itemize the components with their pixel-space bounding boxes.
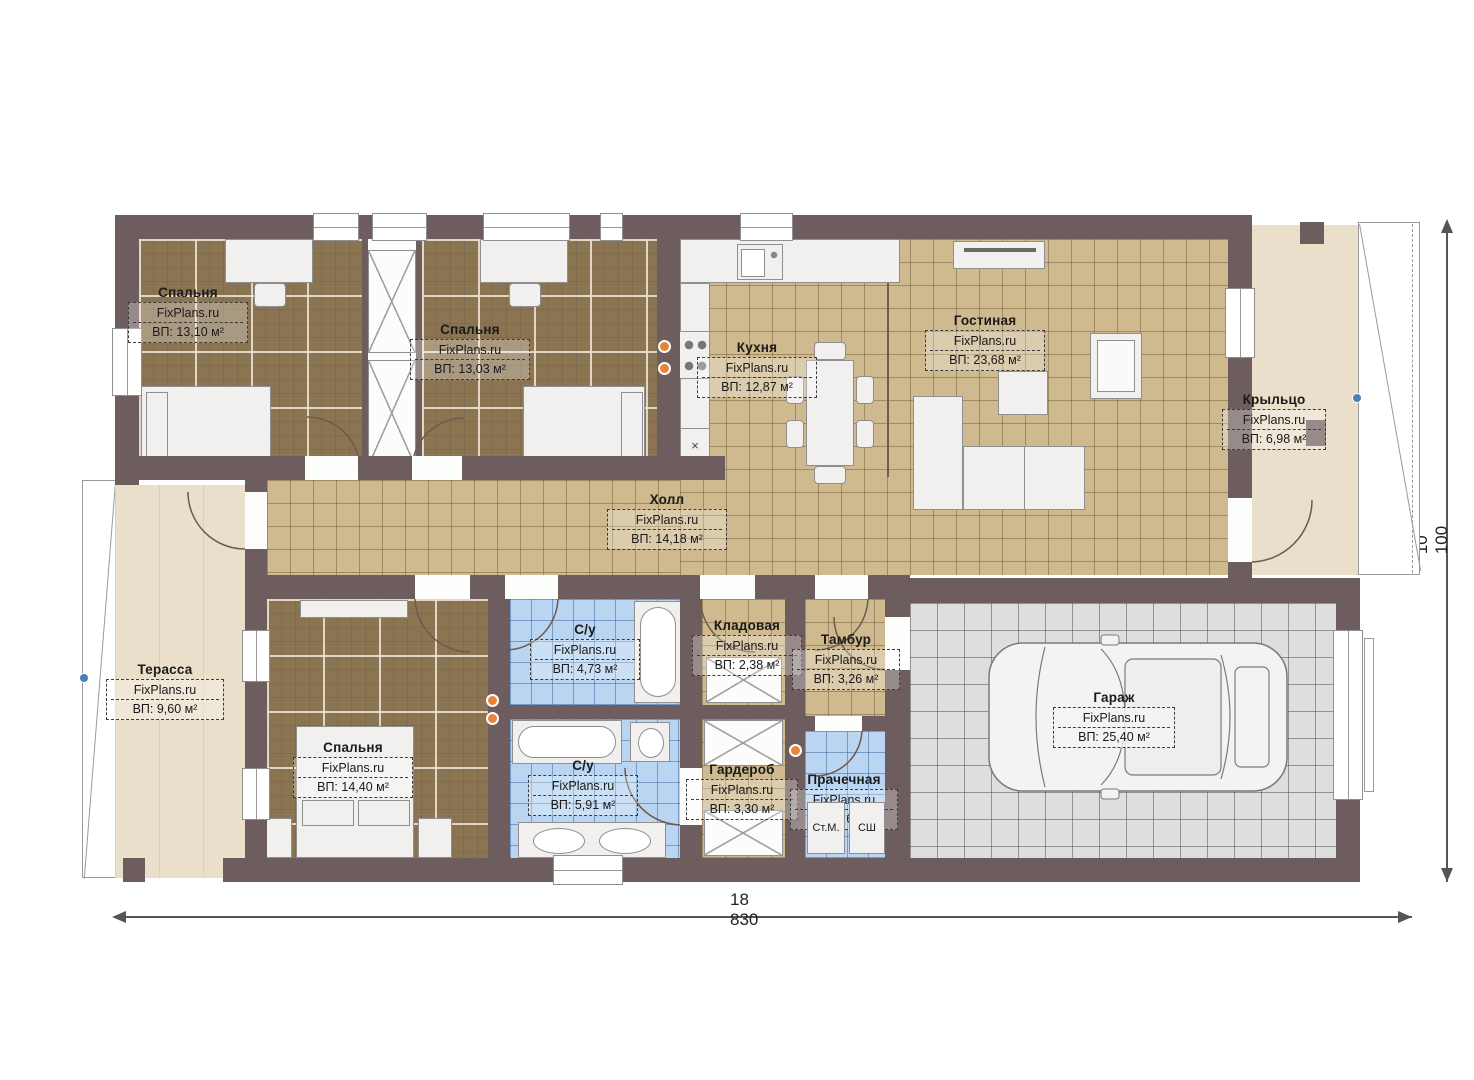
brand-watermark: FixPlans.ru <box>691 781 793 800</box>
reference-dot <box>80 674 88 682</box>
roof-dashed-line <box>1412 224 1413 573</box>
room-area: ВП: 5,91 м² <box>533 796 633 814</box>
window <box>483 213 570 241</box>
washing-machine: Ст.М. <box>807 802 845 854</box>
wall <box>1228 562 1252 578</box>
wall <box>558 575 700 599</box>
window <box>1225 288 1255 358</box>
wall <box>755 575 815 599</box>
door-bedroom-2 <box>412 456 462 480</box>
washing-machine-label: Ст.М. <box>812 822 839 834</box>
room-area: ВП: 14,18 м² <box>612 530 722 548</box>
room-label-kitchen: Кухня FixPlans.ru ВП: 12,87 м² <box>697 340 817 398</box>
pillow <box>358 800 410 826</box>
dining-chair <box>814 342 846 360</box>
wall <box>115 456 305 480</box>
chair <box>509 283 541 307</box>
socket-dot <box>488 714 497 723</box>
tv-stand <box>953 241 1045 269</box>
desk <box>225 239 313 283</box>
dimension-width-label: 18 830 <box>730 890 758 930</box>
terrace-pillar <box>123 858 145 882</box>
dining-chair <box>856 420 874 448</box>
dimension-arrow <box>1398 911 1412 923</box>
room-label-garage: Гараж FixPlans.ru ВП: 25,40 м² <box>1053 690 1175 748</box>
room-label-hall: Холл FixPlans.ru ВП: 14,18 м² <box>607 492 727 550</box>
door-bedroom-1 <box>305 456 358 480</box>
dimension-arrow <box>1441 219 1453 233</box>
sofa-chaise <box>913 396 963 510</box>
room-name: Холл <box>607 492 727 507</box>
room-label-living-room: Гостиная FixPlans.ru ВП: 23,68 м² <box>925 313 1045 371</box>
brand-watermark: FixPlans.ru <box>533 777 633 796</box>
room-name: Гардероб <box>686 762 798 777</box>
nightstand <box>418 818 452 858</box>
brand-watermark: FixPlans.ru <box>1058 709 1170 728</box>
dimension-arrow <box>112 911 126 923</box>
door-laundry <box>815 716 862 731</box>
wall <box>245 575 415 599</box>
door-terrace <box>245 492 267 549</box>
window <box>242 768 270 820</box>
room-name: Спальня <box>410 322 530 337</box>
dimension-line <box>118 916 1412 918</box>
door-pantry <box>700 575 755 599</box>
pillow <box>146 392 168 458</box>
window <box>553 855 623 885</box>
dining-chair <box>814 466 846 484</box>
socket-dot <box>660 364 669 373</box>
room-label-bedroom-1: Спальня FixPlans.ru ВП: 13,10 м² <box>128 285 248 343</box>
dimension-arrow <box>1441 868 1453 882</box>
door-porch <box>1228 500 1252 562</box>
wardrobe-cabinet <box>704 720 783 766</box>
room-area: ВП: 3,26 м² <box>797 670 895 688</box>
brand-watermark: FixPlans.ru <box>111 681 219 700</box>
room-label-bedroom-2: Спальня FixPlans.ru ВП: 13,03 м² <box>410 322 530 380</box>
room-name: С/у <box>530 622 640 637</box>
room-area: ВП: 13,03 м² <box>415 360 525 378</box>
socket-dot <box>791 746 800 755</box>
brand-watermark: FixPlans.ru <box>535 641 635 660</box>
window <box>600 213 623 241</box>
brand-watermark: FixPlans.ru <box>797 651 895 670</box>
room-area: ВП: 12,87 м² <box>702 378 812 396</box>
dining-chair <box>786 420 804 448</box>
room-name: Терасса <box>106 662 224 677</box>
dining-chair <box>856 376 874 404</box>
dishwasher-symbol: × <box>691 438 699 453</box>
brand-watermark: FixPlans.ru <box>298 759 408 778</box>
kitchen-sink <box>737 244 783 280</box>
floor-plan-canvas: × <box>0 0 1474 1080</box>
room-name: Гостиная <box>925 313 1045 328</box>
room-area: ВП: 25,40 м² <box>1058 728 1170 746</box>
sofa <box>963 446 1085 510</box>
reference-dot <box>1353 394 1361 402</box>
socket-dot <box>488 696 497 705</box>
room-area: ВП: 13,10 м² <box>133 323 243 341</box>
armchair <box>1090 333 1142 399</box>
wall <box>470 575 505 599</box>
room-area: ВП: 3,30 м² <box>691 800 793 818</box>
room-area: ВП: 2,38 м² <box>697 656 797 674</box>
wall <box>885 578 1360 603</box>
room-area: ВП: 6,98 м² <box>1227 430 1321 448</box>
wall <box>1228 215 1252 288</box>
window <box>372 213 427 241</box>
room-label-vestibule: Тамбур FixPlans.ru ВП: 3,26 м² <box>792 632 900 690</box>
brand-watermark: FixPlans.ru <box>930 332 1040 351</box>
wall <box>115 215 1252 239</box>
bathtub <box>634 601 682 703</box>
wall <box>358 456 412 480</box>
chair <box>254 283 286 307</box>
brand-watermark: FixPlans.ru <box>697 637 797 656</box>
wall <box>488 599 510 858</box>
window <box>313 213 359 241</box>
room-label-bedroom-3: Спальня FixPlans.ru ВП: 14,40 м² <box>293 740 413 798</box>
garage-door-panel <box>1364 638 1374 792</box>
room-area: ВП: 9,60 м² <box>111 700 219 718</box>
wall <box>362 239 368 456</box>
room-label-terrace: Терасса FixPlans.ru ВП: 9,60 м² <box>106 662 224 720</box>
drying-cabinet: СШ <box>849 802 885 854</box>
door-vestibule <box>815 575 868 599</box>
room-name: Кладовая <box>692 618 802 633</box>
room-name: Тамбур <box>792 632 900 647</box>
brand-watermark: FixPlans.ru <box>415 341 525 360</box>
wall <box>462 456 725 480</box>
brand-watermark: FixPlans.ru <box>133 304 243 323</box>
vanity-double-sink <box>518 822 666 858</box>
room-area: ВП: 4,73 м² <box>535 660 635 678</box>
room-name: Спальня <box>293 740 413 755</box>
kitchen-counter <box>680 239 900 283</box>
room-name: Гараж <box>1053 690 1175 705</box>
wall <box>488 705 702 719</box>
brand-watermark: FixPlans.ru <box>1227 411 1321 430</box>
room-area: ВП: 23,68 м² <box>930 351 1040 369</box>
socket-dot <box>660 342 669 351</box>
window <box>740 213 793 241</box>
pillow <box>302 800 354 826</box>
room-name: С/у <box>528 758 638 773</box>
room-area: ВП: 14,40 м² <box>298 778 408 796</box>
desk <box>480 239 568 283</box>
wardrobe-cabinet <box>368 360 416 466</box>
room-name: Кухня <box>697 340 817 355</box>
closet-shelf <box>300 600 408 618</box>
room-label-porch: Крыльцо FixPlans.ru ВП: 6,98 м² <box>1222 392 1326 450</box>
room-label-bathroom-1: С/у FixPlans.ru ВП: 4,73 м² <box>530 622 640 680</box>
window <box>242 630 270 682</box>
pillow <box>621 392 643 458</box>
room-name: Прачечная <box>790 772 898 787</box>
room-label-pantry: Кладовая FixPlans.ru ВП: 2,38 м² <box>692 618 802 676</box>
room-label-bathroom-2: С/у FixPlans.ru ВП: 5,91 м² <box>528 758 638 816</box>
garage-door <box>1333 630 1363 800</box>
room-name: Крыльцо <box>1222 392 1326 407</box>
wardrobe-cabinet <box>368 250 416 353</box>
room-name: Спальня <box>128 285 248 300</box>
drying-cabinet-label: СШ <box>858 822 876 834</box>
door-bathroom-1 <box>505 575 558 599</box>
room-label-wardrobe: Гардероб FixPlans.ru ВП: 3,30 м² <box>686 762 798 820</box>
toilet <box>630 722 670 762</box>
brand-watermark: FixPlans.ru <box>612 511 722 530</box>
coffee-table <box>998 371 1048 415</box>
door-bedroom-3 <box>415 575 470 599</box>
wall <box>223 858 1360 882</box>
brand-watermark: FixPlans.ru <box>702 359 812 378</box>
porch-pillar <box>1300 222 1324 244</box>
